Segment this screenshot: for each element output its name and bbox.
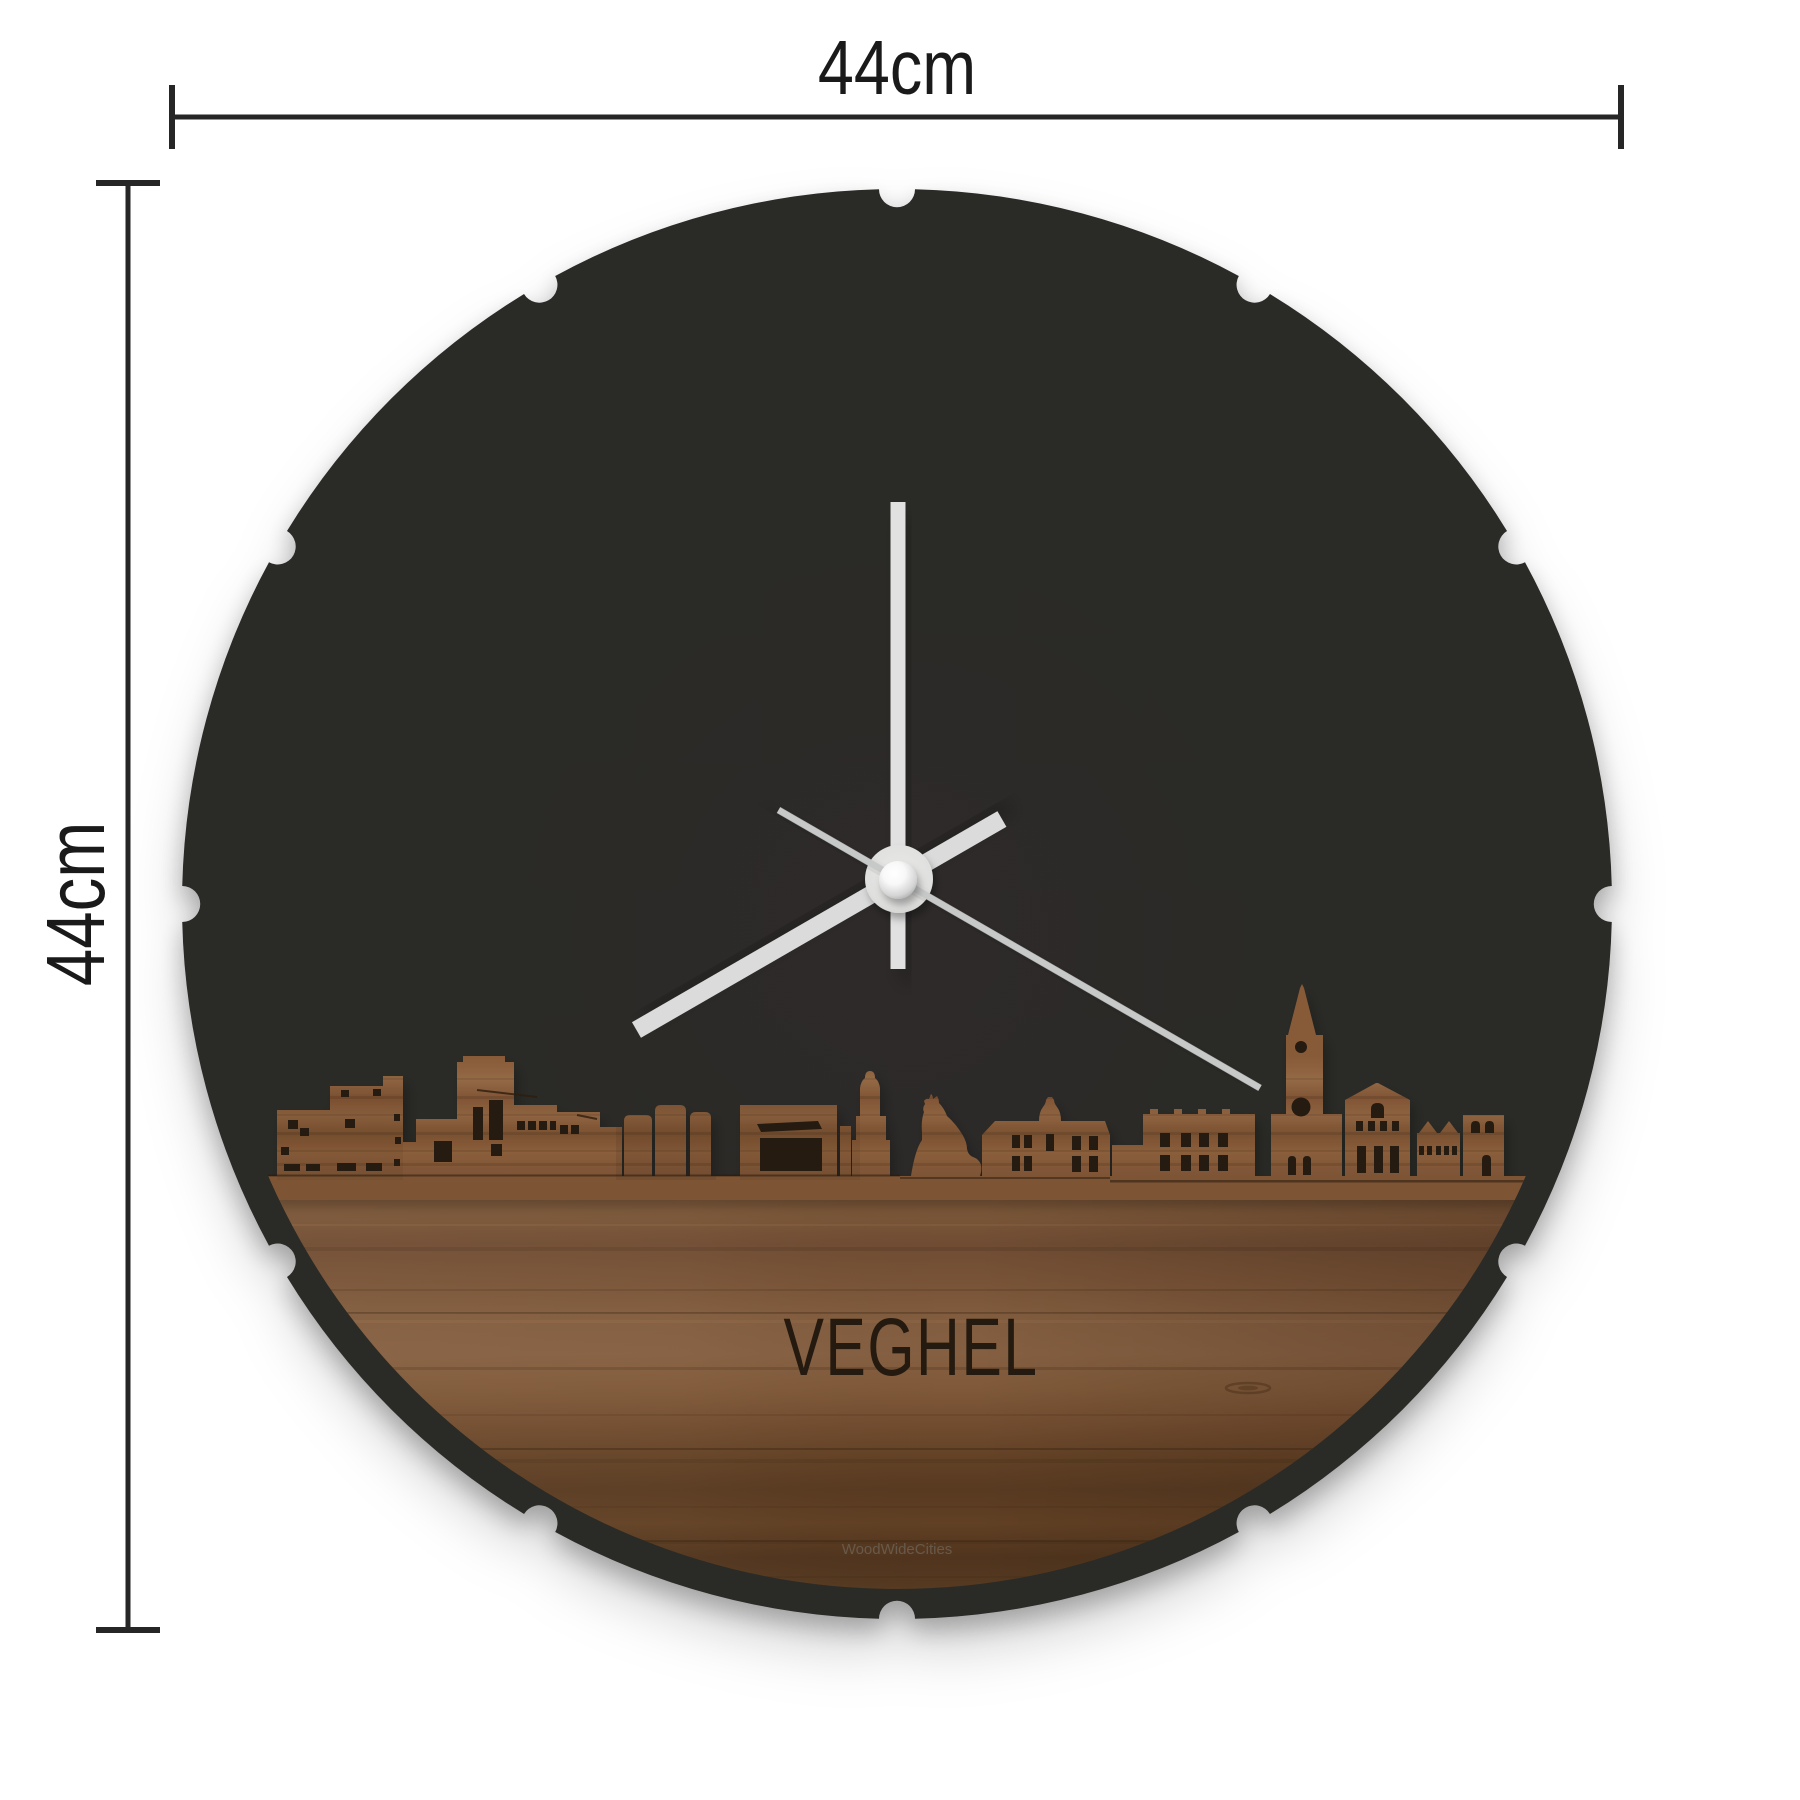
- svg-text:VEGHEL: VEGHEL: [783, 1302, 1038, 1393]
- svg-text:44cm: 44cm: [818, 26, 976, 112]
- svg-text:WoodWideCities: WoodWideCities: [842, 1541, 953, 1558]
- svg-text:44cm: 44cm: [30, 822, 122, 986]
